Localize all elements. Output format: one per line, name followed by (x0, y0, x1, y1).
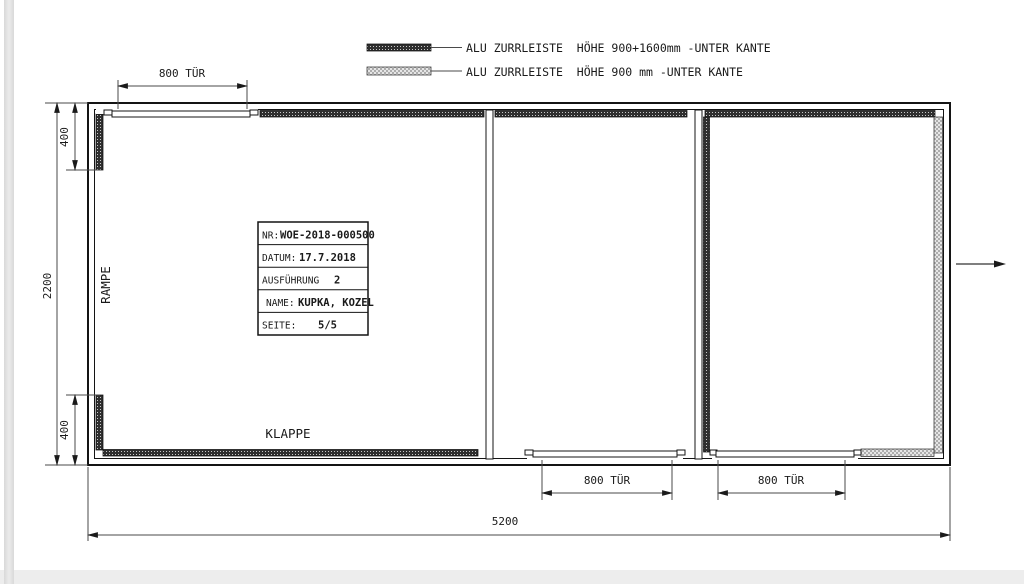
door-bottom-middle (525, 450, 685, 460)
dim-text-door-mid: 800 TÜR (584, 474, 631, 487)
partition-wall-2 (695, 110, 702, 459)
dim-text-door-right: 800 TÜR (758, 474, 805, 487)
field-value: KUPKA, KOZEL (298, 297, 374, 309)
dim-text-door-top: 800 TÜR (159, 67, 206, 80)
field-label: AUSFÜHRUNG (262, 276, 319, 287)
ramp-label: RAMPE (98, 266, 113, 304)
field-label: SEITE: (262, 321, 296, 332)
field-label: DATUM: (262, 253, 296, 264)
zurrleiste-left-bottom (96, 395, 103, 450)
legend-label-dark: ALU ZURRLEISTE HÖHE 900+1600mm -UNTER KA… (466, 39, 771, 55)
legend-swatch-light (367, 67, 431, 75)
left-scrollbar[interactable] (4, 0, 14, 584)
field-label: NAME: (266, 298, 295, 309)
legend-label-light: ALU ZURRLEISTE HÖHE 900 mm -UNTER KANTE (466, 63, 743, 79)
door-leaf (716, 451, 854, 457)
door-end-tab (104, 110, 112, 115)
direction-arrow-icon (956, 261, 1006, 268)
zurrleiste-bottom-klappe (103, 450, 478, 457)
field-value: 17.7.2018 (299, 252, 356, 264)
door-leaf (112, 111, 250, 117)
dim-text-height-total: 2200 (41, 273, 54, 300)
zurrleiste-right-wall (934, 117, 943, 453)
door-bottom-right (710, 450, 861, 460)
door-leaf (533, 451, 677, 457)
door-top-left (96, 106, 258, 117)
dim-width-total: 5200 (88, 467, 950, 541)
title-block: NR: WOE-2018-000500 DATUM: 17.7.2018 AUS… (258, 222, 375, 335)
field-value: 2 (334, 275, 340, 287)
bottom-scrollbar-track[interactable] (0, 570, 1024, 584)
title-block-row-datum: DATUM: 17.7.2018 (262, 252, 356, 264)
outer-walls (88, 103, 950, 465)
flap-label: KLAPPE (265, 426, 310, 441)
zurrleiste-partition2-side (704, 117, 710, 452)
field-value: WOE-2018-000500 (280, 230, 375, 242)
door-end-tab (250, 110, 258, 115)
legend-swatch-dark (367, 44, 431, 51)
zurrleiste-top-middle (495, 111, 687, 118)
legend: ALU ZURRLEISTE HÖHE 900+1600mm -UNTER KA… (367, 39, 771, 79)
dim-text-height-bottom: 400 (58, 420, 71, 440)
door-end-tab (525, 450, 533, 455)
dim-text-width-total: 5200 (492, 515, 519, 528)
drawing-canvas: ALU ZURRLEISTE HÖHE 900+1600mm -UNTER KA… (0, 0, 1024, 584)
zurrleiste-top-left (260, 111, 484, 118)
floorplan-drawing: ALU ZURRLEISTE HÖHE 900+1600mm -UNTER KA… (0, 0, 1024, 584)
field-label: NR: (262, 231, 279, 242)
outer-wall-rect (88, 103, 950, 465)
door-end-tab (854, 450, 861, 455)
title-block-row-nr: NR: WOE-2018-000500 (262, 230, 375, 242)
dim-height-total: 2200 (41, 103, 88, 465)
dim-text-height-top: 400 (58, 127, 71, 147)
zurrleiste-bottom-right (861, 449, 934, 457)
zurrleiste-top-right (705, 111, 935, 118)
field-value: 5/5 (318, 320, 337, 332)
door-end-tab (677, 450, 685, 455)
partition-wall-1 (486, 110, 493, 459)
title-block-row-name: NAME: KUPKA, KOZEL (266, 297, 374, 309)
zurrleiste-left-top (96, 114, 103, 170)
